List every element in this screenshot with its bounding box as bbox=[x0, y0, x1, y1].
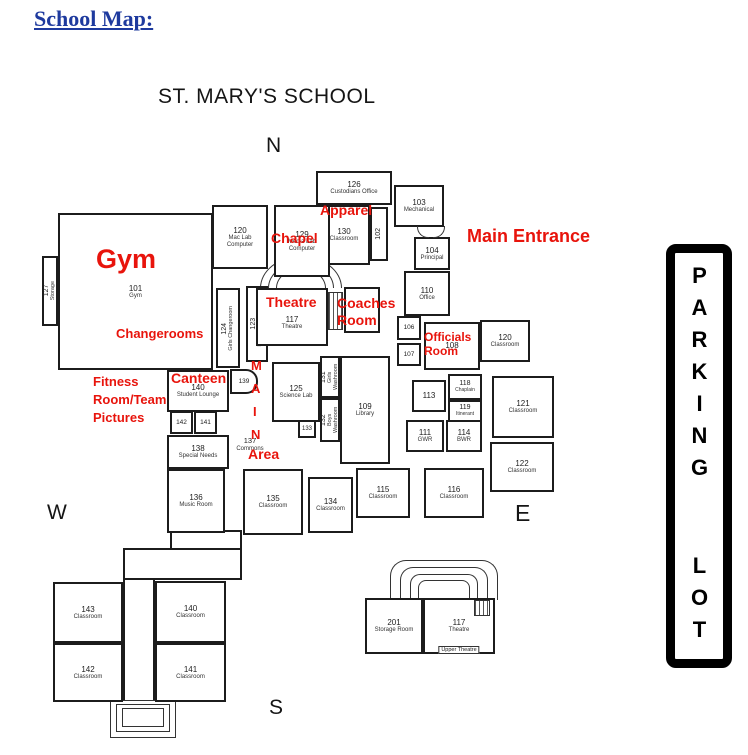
room-142-south: 142 Classroom bbox=[53, 643, 123, 702]
room-111: 111 GWR bbox=[406, 420, 444, 452]
room-number: 141 bbox=[184, 665, 197, 674]
room-label: Boys Washroom bbox=[328, 400, 340, 440]
room-number: 117 bbox=[453, 618, 466, 627]
room-label: Chaplain bbox=[455, 388, 475, 393]
room-label: Storage bbox=[51, 281, 57, 300]
room-label: Classroom bbox=[316, 506, 345, 512]
room-number: 120 bbox=[233, 226, 246, 235]
parking-lot-sign: PARKING LOT bbox=[666, 244, 732, 668]
room-label: Girls Changeroom bbox=[229, 306, 235, 351]
room-number: 201 bbox=[387, 618, 400, 627]
room-label: Library bbox=[356, 411, 374, 417]
room-number: 140 bbox=[184, 604, 197, 613]
room-104: 104 Principal bbox=[414, 237, 450, 270]
room-135: 135 Classroom bbox=[243, 469, 303, 535]
compass-north: N bbox=[266, 134, 281, 158]
room-number: 106 bbox=[404, 324, 415, 331]
room-label: Classroom bbox=[369, 494, 398, 500]
room-103: 103 Mechanical bbox=[394, 185, 444, 227]
room-number: 114 bbox=[458, 428, 471, 437]
school-map-page: School Map: ST. MARY'S SCHOOL N W E S 12… bbox=[0, 0, 748, 755]
room-label: Theatre bbox=[282, 324, 303, 330]
room-126: 126 Custodians Office bbox=[316, 171, 392, 205]
room-number: 104 bbox=[425, 246, 438, 255]
room-label: Principal bbox=[420, 255, 443, 261]
room-number: 102 bbox=[375, 228, 383, 240]
room-number: 137 bbox=[228, 437, 272, 446]
room-number: 113 bbox=[423, 391, 436, 400]
room-label: Science Lab bbox=[279, 393, 312, 399]
room-label: Classroom bbox=[176, 613, 205, 619]
room-118-chaplain: 118 Chaplain bbox=[448, 374, 482, 400]
room-label: Classroom bbox=[508, 468, 537, 474]
room-132-boys-washroom: 132 Boys Washroom bbox=[320, 398, 340, 442]
room-number: 141 bbox=[200, 419, 211, 426]
annotation-chapel: Chapel bbox=[271, 230, 318, 247]
compass-south: S bbox=[269, 696, 283, 720]
room-number: 139 bbox=[239, 378, 250, 385]
map-title: ST. MARY'S SCHOOL bbox=[158, 85, 376, 109]
annotation-main-letter-m: M bbox=[251, 358, 262, 373]
parking-word: LOT bbox=[686, 553, 712, 649]
page-title: School Map: bbox=[34, 6, 153, 32]
room-121: 121 Classroom bbox=[492, 376, 554, 438]
room-number: 142 bbox=[176, 419, 187, 426]
annotation-main-letter-i: I bbox=[253, 404, 257, 419]
room-label: Office bbox=[419, 295, 435, 301]
room-number: 136 bbox=[189, 493, 202, 502]
corridor-south-vertical bbox=[123, 578, 155, 706]
room-number: 125 bbox=[289, 384, 302, 393]
room-115: 115 Classroom bbox=[356, 468, 410, 518]
room-number: 111 bbox=[419, 428, 431, 437]
room-201-storage: 201 Storage Room bbox=[365, 598, 423, 654]
annotation-main-letter-a: A bbox=[251, 381, 260, 396]
room-number: 116 bbox=[448, 485, 461, 494]
room-number: 109 bbox=[358, 402, 371, 411]
room-label: Music Room bbox=[179, 502, 212, 508]
room-number: 120 bbox=[498, 333, 511, 342]
room-107: 107 bbox=[397, 343, 421, 366]
annotation-line: Officials bbox=[424, 330, 471, 344]
compass-west: W bbox=[47, 501, 67, 525]
room-number: 122 bbox=[515, 459, 528, 468]
annotation-main-entrance: Main Entrance bbox=[467, 226, 590, 247]
upper-theatre-caption: Upper Theatre bbox=[438, 646, 479, 654]
room-number: 115 bbox=[377, 485, 390, 494]
room-label: Classroom bbox=[74, 614, 103, 620]
room-number: 138 bbox=[191, 444, 204, 453]
room-141-small: 141 bbox=[194, 411, 217, 434]
room-number: 110 bbox=[421, 286, 434, 295]
room-label: Gym bbox=[129, 293, 142, 299]
room-109-library: 109 Library bbox=[340, 356, 390, 464]
room-label: Student Lounge bbox=[177, 392, 219, 398]
room-138: 138 Special Needs bbox=[167, 435, 229, 469]
room-140-south: 140 Classroom bbox=[155, 581, 226, 643]
room-number: 134 bbox=[324, 497, 337, 506]
annotation-line: Pictures bbox=[93, 409, 166, 427]
room-label: Itinerant bbox=[456, 412, 474, 417]
room-127: 127 Storage bbox=[42, 256, 58, 326]
corridor-south-horizontal bbox=[123, 548, 242, 580]
room-125: 125 Science Lab bbox=[272, 362, 320, 422]
room-114: 114 BWR bbox=[446, 420, 482, 452]
stairs-upper-theatre bbox=[474, 600, 490, 616]
annotation-area: Area bbox=[248, 446, 279, 463]
room-124-girls-changeroom: 124 Girls Changeroom bbox=[216, 288, 240, 368]
room-136: 136 Music Room bbox=[167, 469, 225, 533]
annotation-main-letter-n: N bbox=[251, 427, 260, 442]
annotation-line: Room bbox=[337, 312, 395, 329]
room-label: Mac Lab Computer bbox=[220, 235, 260, 248]
room-label: Classroom bbox=[509, 408, 538, 414]
compass-east: E bbox=[515, 500, 530, 527]
room-number: 143 bbox=[81, 605, 94, 614]
room-label: Classroom bbox=[491, 342, 520, 348]
annotation-line: Room/Team bbox=[93, 391, 166, 409]
room-120-computer-lab: 120 Mac Lab Computer bbox=[212, 205, 268, 269]
room-106: 106 bbox=[397, 316, 421, 340]
room-131-girls-washroom: 131 Girls Washroom bbox=[320, 356, 340, 398]
room-label: Classroom bbox=[74, 674, 103, 680]
annotation-line: Coaches bbox=[337, 295, 395, 312]
room-label: Classroom bbox=[440, 494, 469, 500]
room-110: 110 Office bbox=[404, 271, 450, 316]
room-number: 142 bbox=[81, 665, 94, 674]
room-143: 143 Classroom bbox=[53, 582, 123, 643]
room-label: Classroom bbox=[259, 503, 288, 509]
annotation-line: Fitness bbox=[93, 373, 166, 391]
room-120-east: 120 Classroom bbox=[480, 320, 530, 362]
room-number: 130 bbox=[337, 227, 350, 236]
annotation-fitness-room: Fitness Room/Team Pictures bbox=[93, 373, 166, 427]
room-label: Storage Room bbox=[375, 627, 414, 633]
room-134: 134 Classroom bbox=[308, 477, 353, 533]
parking-word: PARKING bbox=[686, 263, 712, 487]
room-number: 133 bbox=[302, 426, 312, 433]
annotation-line: Room bbox=[424, 344, 471, 358]
room-label: BWR bbox=[457, 437, 471, 443]
annotation-officials-room: Officials Room bbox=[424, 330, 471, 358]
room-141-south: 141 Classroom bbox=[155, 643, 226, 702]
room-label: Girls Washroom bbox=[328, 358, 340, 396]
room-119-itinerant: 119 Itinerant bbox=[448, 400, 482, 422]
room-102: 102 bbox=[370, 207, 388, 261]
room-label: Special Needs bbox=[179, 453, 218, 459]
room-number: 135 bbox=[266, 494, 279, 503]
annotation-changerooms: Changerooms bbox=[116, 326, 203, 341]
room-number: 121 bbox=[516, 399, 529, 408]
annotation-gym: Gym bbox=[96, 244, 156, 276]
room-101-gym: 101 Gym bbox=[58, 213, 213, 370]
room-number: 101 bbox=[129, 284, 142, 293]
annotation-apparel: Apparel bbox=[320, 202, 372, 219]
room-label: Classroom bbox=[176, 674, 205, 680]
annotation-theatre: Theatre bbox=[266, 294, 317, 311]
room-122: 122 Classroom bbox=[490, 442, 554, 492]
room-113: 113 bbox=[412, 380, 446, 412]
annotation-canteen: Canteen bbox=[171, 370, 226, 387]
room-number: 117 bbox=[286, 315, 299, 324]
room-133: 133 bbox=[298, 420, 316, 438]
room-label: Classroom bbox=[330, 236, 359, 242]
room-116: 116 Classroom bbox=[424, 468, 484, 518]
room-number: 103 bbox=[412, 198, 425, 207]
room-number: 107 bbox=[404, 351, 415, 358]
room-label: Theatre bbox=[449, 627, 470, 633]
room-label: Custodians Office bbox=[330, 189, 377, 195]
room-label: GWR bbox=[418, 437, 433, 443]
room-number: 126 bbox=[347, 180, 360, 189]
room-label: Mechanical bbox=[404, 207, 434, 213]
room-142-small: 142 bbox=[170, 411, 193, 434]
annotation-coaches-room: Coaches Room bbox=[337, 295, 395, 328]
